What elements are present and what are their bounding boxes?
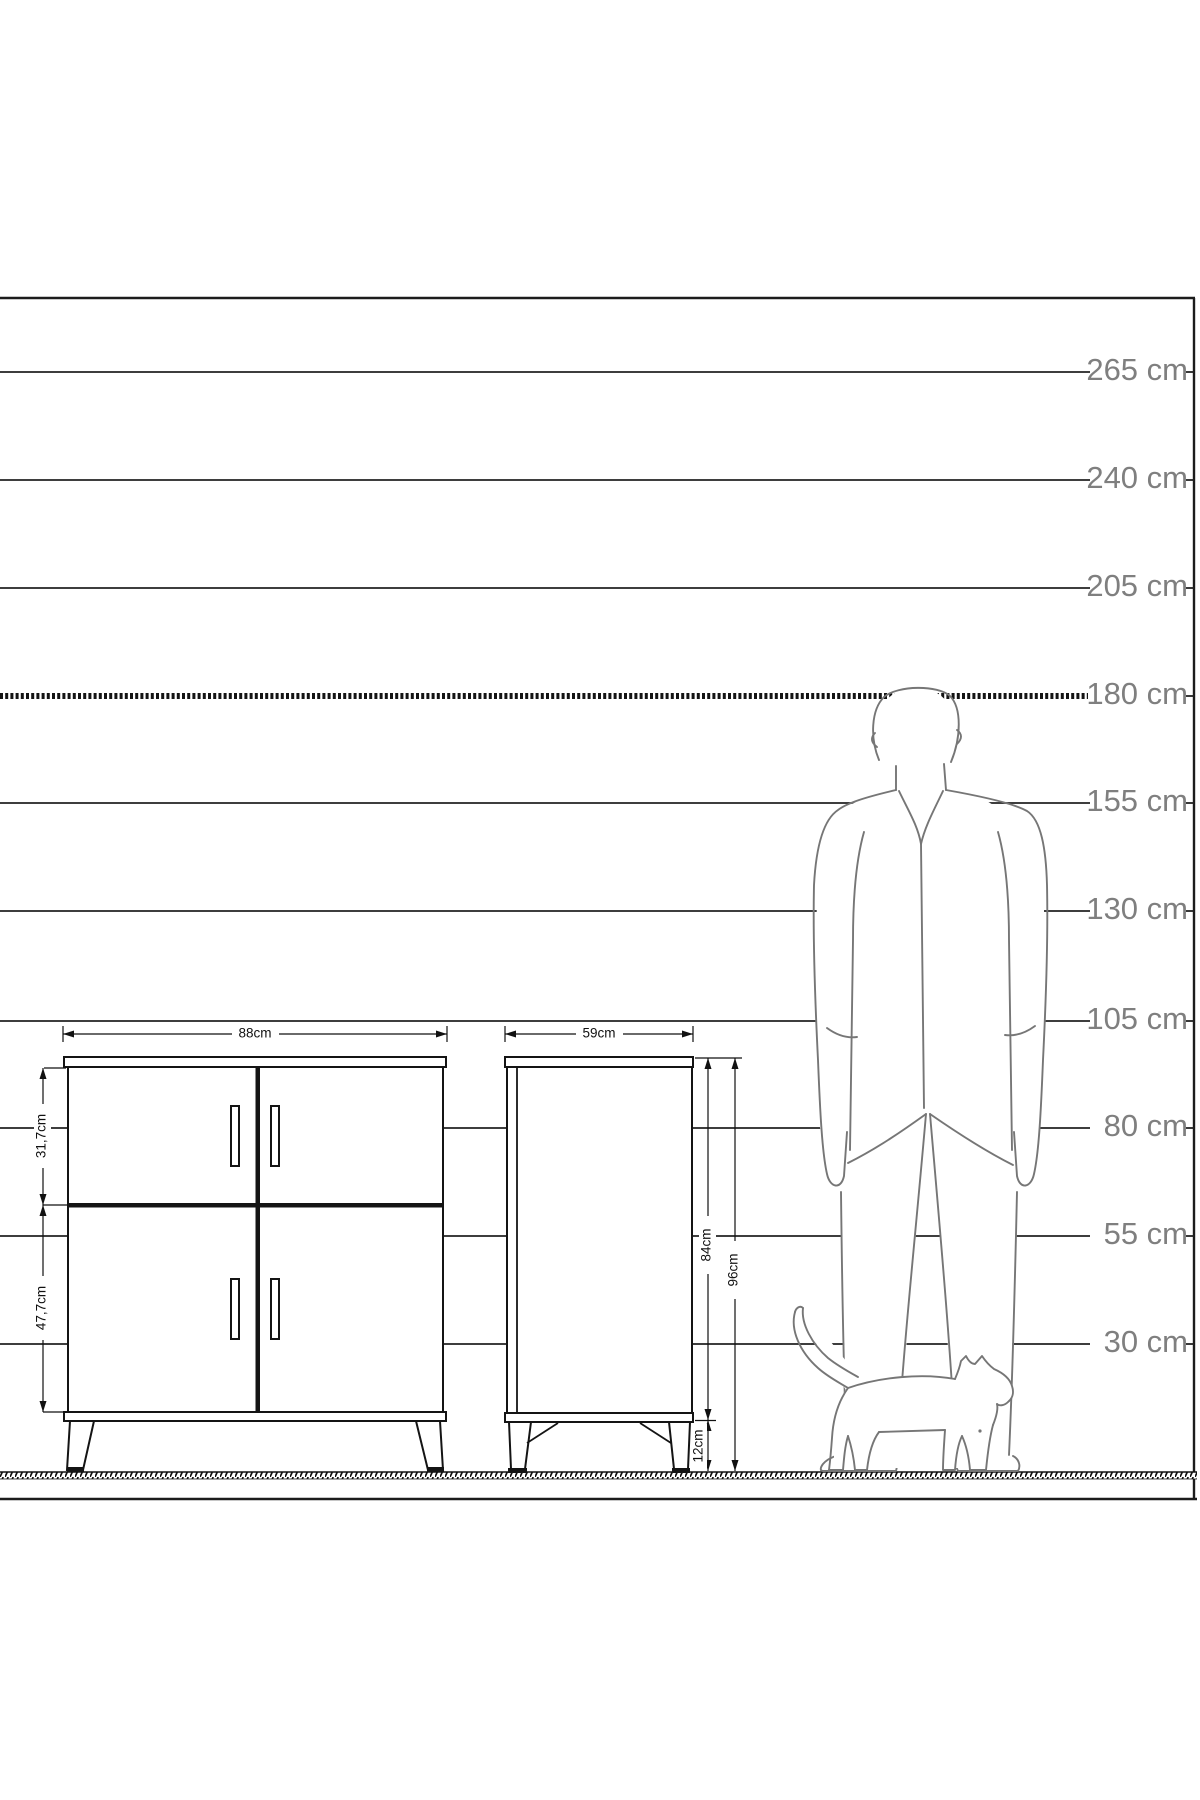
- side-leg-front: [509, 1422, 531, 1469]
- ruler-label-130: 130 cm: [1086, 891, 1188, 926]
- ruler-label-205: 205 cm: [1086, 568, 1188, 603]
- side-top-panel: [505, 1057, 693, 1067]
- dimension-lower-47-7cm: 47,7cm: [34, 1286, 49, 1330]
- side-foot-back: [672, 1468, 690, 1473]
- cabinet-side-view: [505, 1057, 693, 1473]
- ruler-label-265: 265 cm: [1086, 352, 1188, 387]
- ruler-label-180: 180 cm: [1086, 676, 1188, 711]
- ruler-mark-205: 205 cm: [0, 568, 1194, 603]
- ruler-mark-265: 265 cm: [0, 352, 1194, 387]
- front-foot-left: [67, 1467, 84, 1472]
- ruler-label-240: 240 cm: [1086, 460, 1188, 495]
- front-bottom-panel: [64, 1412, 446, 1421]
- dimension-body-height-84cm: 84cm: [699, 1228, 714, 1261]
- ruler-label-30: 30 cm: [1104, 1324, 1188, 1359]
- side-foot-front: [508, 1468, 527, 1473]
- cabinet-front-view: [64, 1057, 446, 1472]
- ruler-mark-240: 240 cm: [0, 460, 1194, 495]
- front-center-divider: [256, 1067, 261, 1412]
- front-handle-lower-left: [231, 1279, 239, 1339]
- front-leg-left: [67, 1421, 94, 1470]
- side-body: [507, 1067, 692, 1413]
- front-middle-divider: [68, 1203, 443, 1208]
- ruler-label-55: 55 cm: [1104, 1216, 1188, 1251]
- dimension-width-88cm: 88cm: [238, 1026, 271, 1041]
- front-top-panel: [64, 1057, 446, 1067]
- ruler-label-80: 80 cm: [1104, 1108, 1188, 1143]
- ground-line: [0, 1472, 1197, 1479]
- front-leg-right: [416, 1421, 443, 1470]
- ruler-label-155: 155 cm: [1086, 783, 1188, 818]
- dimension-depth-59cm: 59cm: [582, 1026, 615, 1041]
- man-silhouette: [814, 687, 1048, 1471]
- front-handle-lower-right: [271, 1279, 279, 1339]
- dimension-upper-31-7cm: 31,7cm: [34, 1114, 49, 1158]
- diagram-canvas: 265 cm 240 cm 205 cm 180 cm 155 cm 130 c…: [0, 0, 1200, 1800]
- dimension-leg-height-12cm: 12cm: [691, 1429, 706, 1462]
- height-comparison-diagram: 265 cm 240 cm 205 cm 180 cm 155 cm 130 c…: [0, 0, 1200, 1800]
- front-foot-right: [427, 1467, 444, 1472]
- dimension-total-height-96cm: 96cm: [726, 1253, 741, 1286]
- side-leg-back: [669, 1422, 690, 1469]
- front-handle-upper-right: [271, 1106, 279, 1166]
- ruler-label-105: 105 cm: [1086, 1001, 1188, 1036]
- ruler-mark-180-reference: 180 cm: [0, 676, 1194, 711]
- side-bottom-panel: [505, 1413, 693, 1422]
- front-handle-upper-left: [231, 1106, 239, 1166]
